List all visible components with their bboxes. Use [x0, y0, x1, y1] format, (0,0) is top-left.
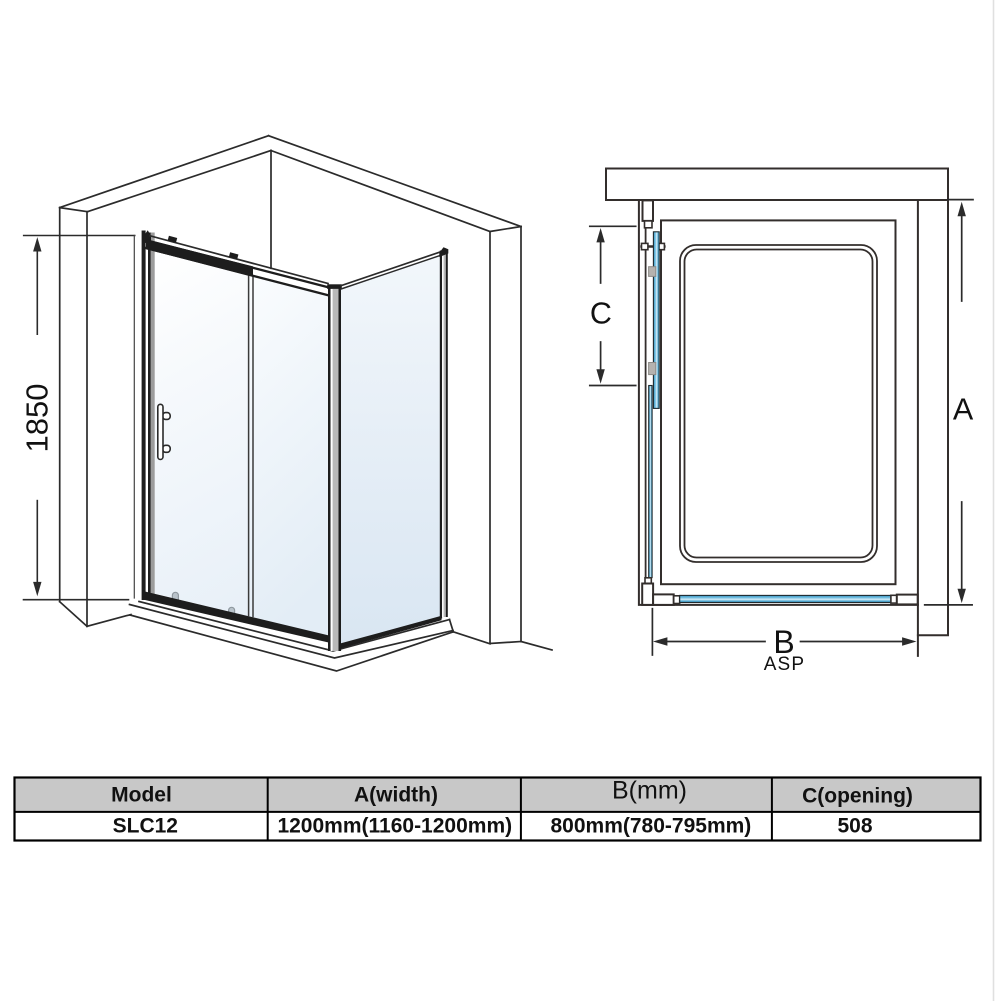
svg-text:ASP: ASP	[764, 654, 806, 675]
svg-text:C(opening): C(opening)	[802, 785, 913, 808]
svg-text:C: C	[590, 296, 612, 330]
svg-text:A(width): A(width)	[354, 784, 438, 807]
svg-text:800mm(780-795mm): 800mm(780-795mm)	[551, 814, 752, 837]
svg-text:A: A	[953, 392, 974, 426]
svg-text:Model: Model	[111, 784, 172, 807]
svg-text:1200mm(1160-1200mm): 1200mm(1160-1200mm)	[277, 814, 512, 837]
svg-text:508: 508	[837, 814, 872, 837]
svg-text:SLC12: SLC12	[113, 814, 178, 837]
svg-text:B(mm): B(mm)	[612, 777, 687, 805]
svg-text:1850: 1850	[20, 384, 55, 453]
